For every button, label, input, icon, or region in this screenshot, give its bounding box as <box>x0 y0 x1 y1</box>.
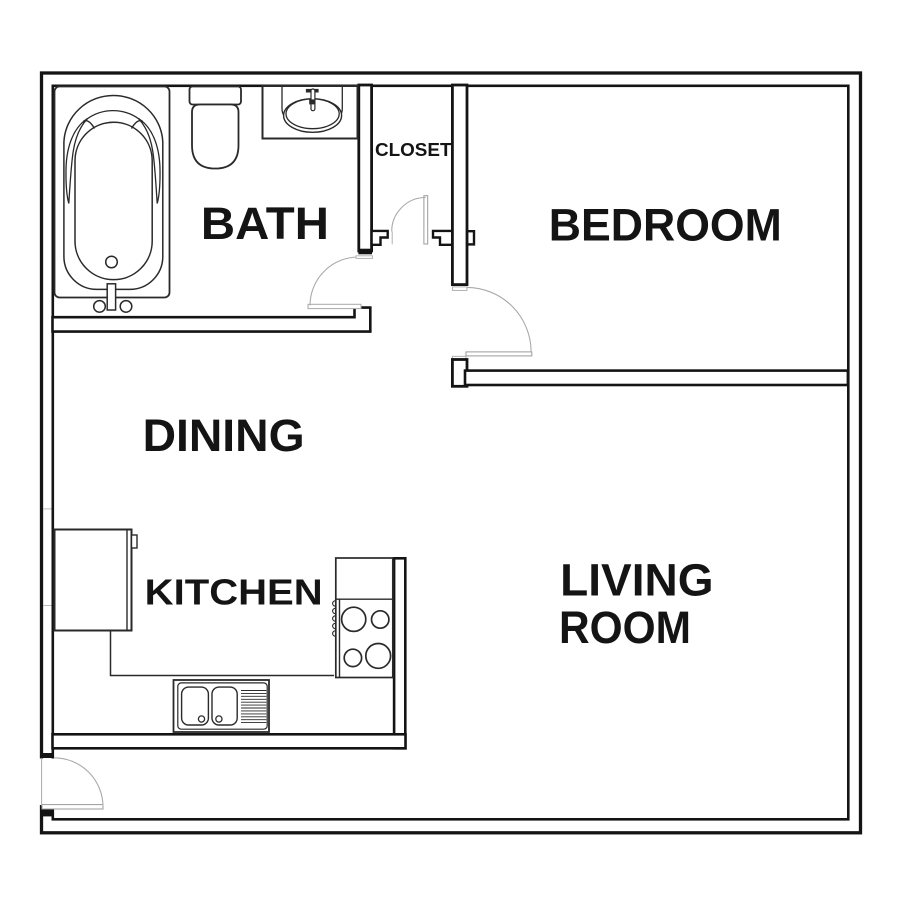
svg-text:ROOM: ROOM <box>559 602 691 653</box>
svg-text:BEDROOM: BEDROOM <box>549 200 782 251</box>
svg-text:KITCHEN: KITCHEN <box>145 572 323 613</box>
svg-text:DINING: DINING <box>143 410 305 461</box>
svg-text:CLOSET: CLOSET <box>375 140 452 160</box>
svg-text:LIVING: LIVING <box>560 555 713 606</box>
svg-text:BATH: BATH <box>201 198 329 249</box>
